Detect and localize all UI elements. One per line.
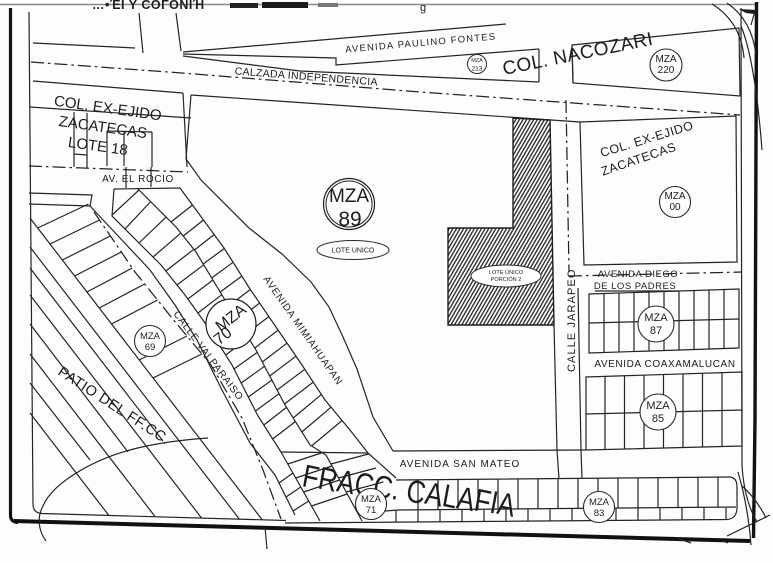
svg-text:220: 220 — [658, 65, 675, 76]
svg-text:LOTE UNICO: LOTE UNICO — [332, 248, 375, 255]
svg-text:MZA: MZA — [140, 331, 161, 342]
svg-text:g: g — [420, 2, 426, 14]
svg-text:AVENIDA COAXAMALUCAN: AVENIDA COAXAMALUCAN — [594, 359, 735, 370]
svg-text:85: 85 — [652, 413, 664, 425]
svg-text:PORCIÓN 2: PORCIÓN 2 — [491, 276, 522, 283]
svg-text:…•ΈI Y CΟΓΟΝIΉ: …•ΈI Y CΟΓΟΝIΉ — [92, 0, 205, 12]
svg-text:MZA: MZA — [646, 400, 670, 412]
svg-text:MZA: MZA — [329, 186, 369, 207]
svg-text:CALLE JARAPEO: CALLE JARAPEO — [566, 268, 578, 372]
svg-text:213: 213 — [472, 66, 483, 73]
svg-text:MZA: MZA — [361, 494, 382, 505]
svg-text:83: 83 — [594, 508, 605, 519]
svg-text:69: 69 — [145, 342, 156, 353]
svg-text:MZA: MZA — [589, 497, 610, 508]
svg-text:71: 71 — [366, 505, 377, 516]
svg-text:89: 89 — [338, 208, 361, 231]
svg-text:MZA: MZA — [655, 54, 676, 65]
svg-text:AVENIDA SAN MATEO: AVENIDA SAN MATEO — [400, 459, 521, 470]
svg-text:AV. EL ROCIO: AV. EL ROCIO — [102, 174, 174, 185]
svg-text:LOTE ÚNICO: LOTE ÚNICO — [489, 269, 524, 276]
svg-text:87: 87 — [650, 325, 662, 337]
svg-text:DE LOS PADRES: DE LOS PADRES — [594, 281, 676, 292]
svg-text:MZA: MZA — [644, 312, 668, 324]
svg-text:00: 00 — [669, 202, 681, 213]
svg-text:MZA: MZA — [664, 191, 685, 202]
svg-text:AVENIDA DIEGO: AVENIDA DIEGO — [598, 269, 678, 280]
svg-text:MZA: MZA — [471, 58, 483, 64]
